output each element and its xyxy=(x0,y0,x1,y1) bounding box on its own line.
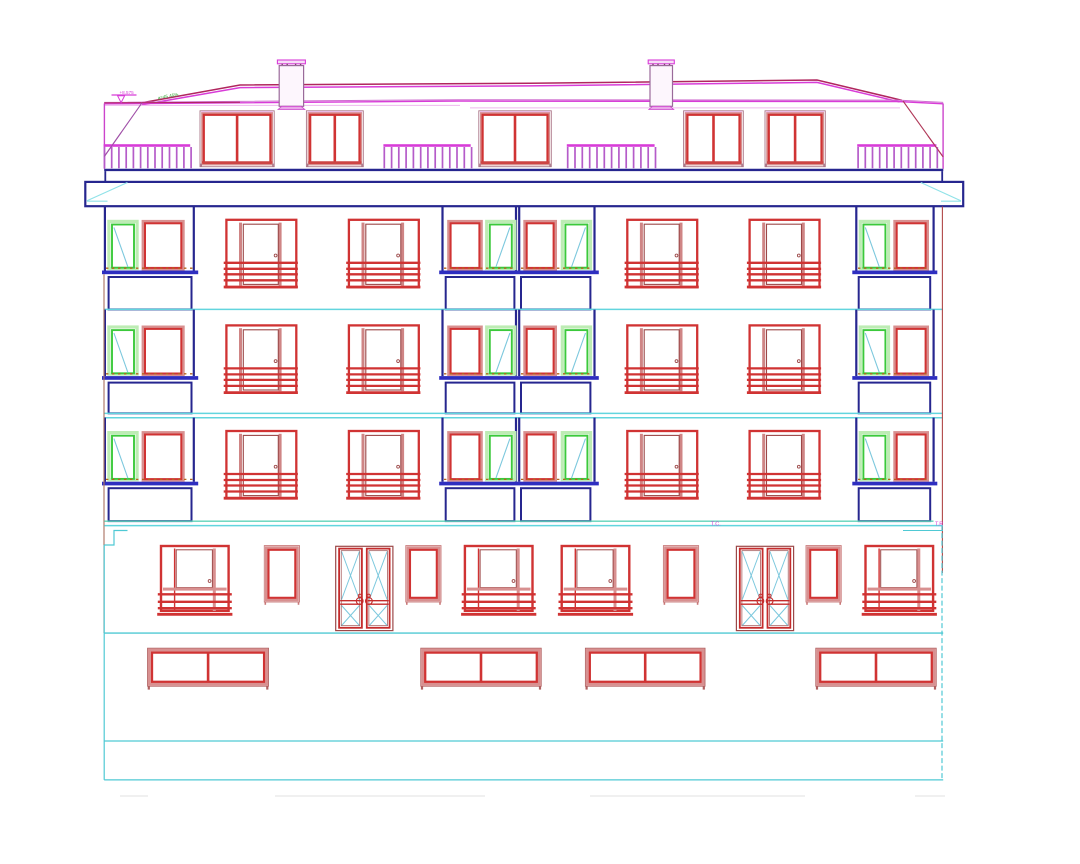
svg-text:T.C.: T.C. xyxy=(711,522,721,528)
svg-text:+8.575: +8.575 xyxy=(120,90,135,95)
